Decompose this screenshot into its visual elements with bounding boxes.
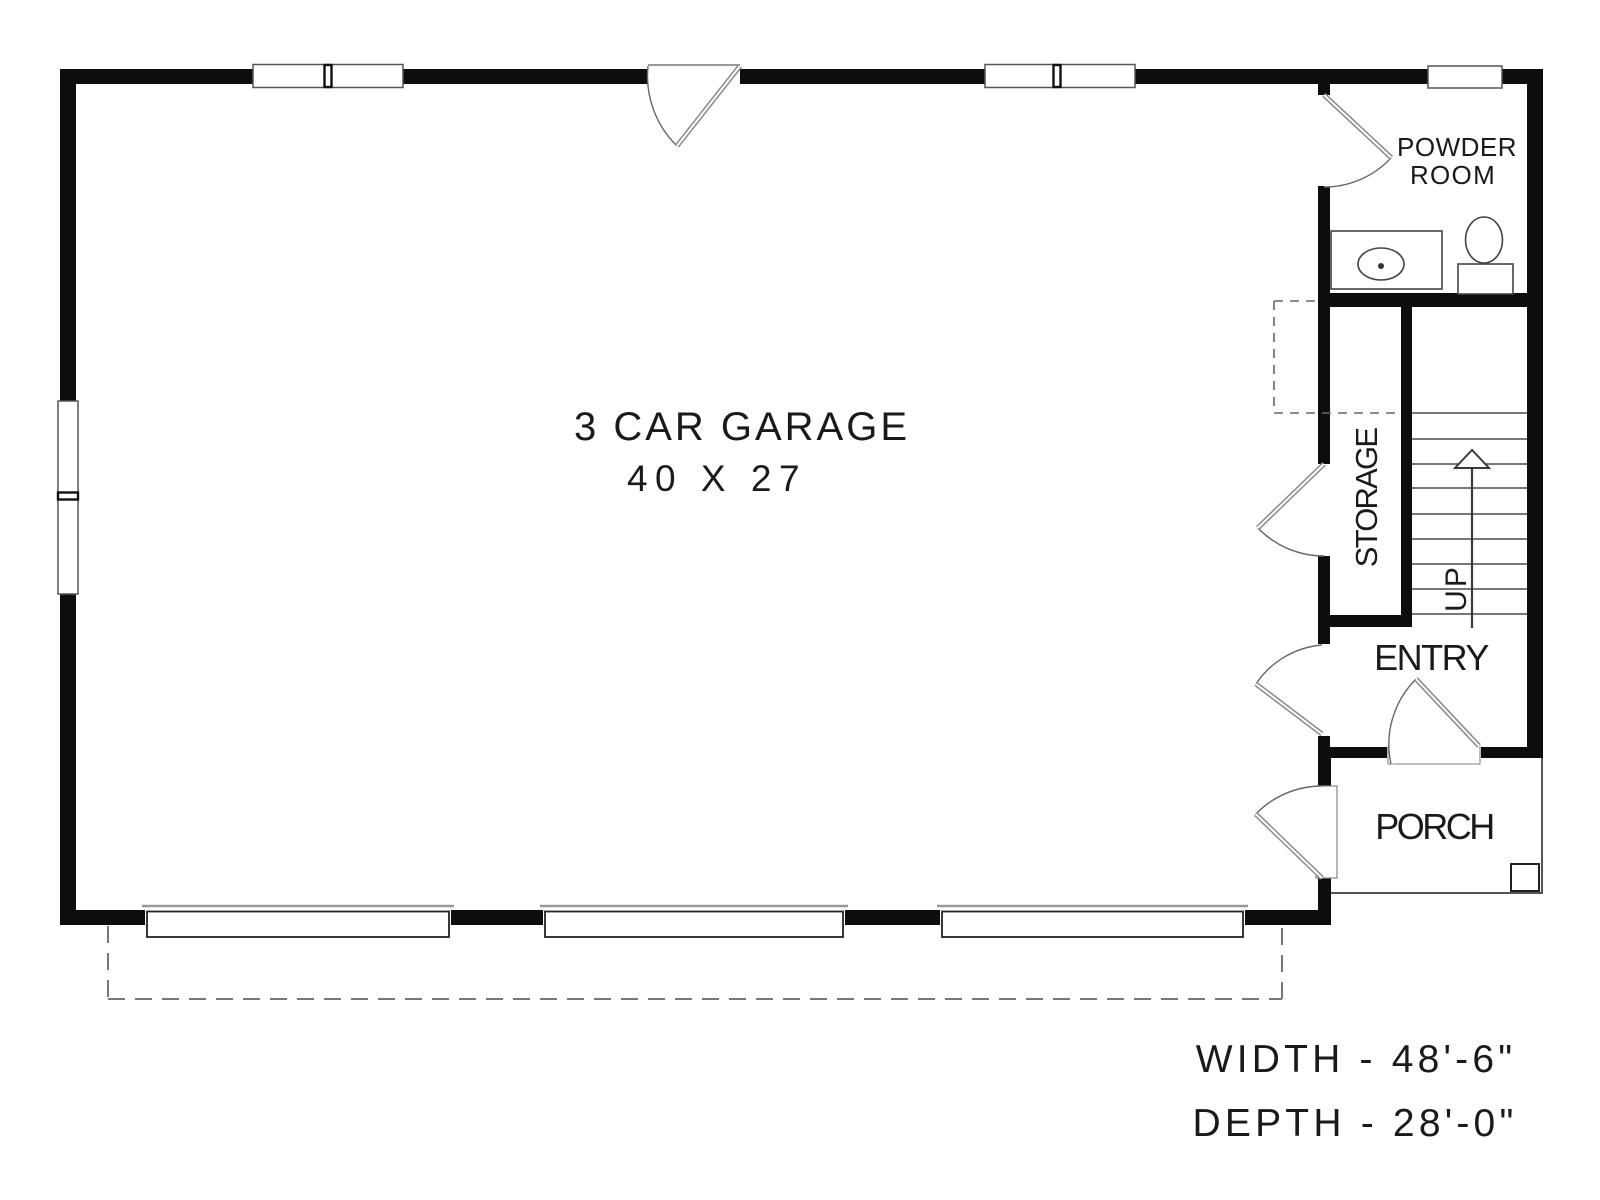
- svg-text:UP: UP: [1440, 564, 1473, 612]
- svg-text:DEPTH - 28'-0": DEPTH - 28'-0": [1193, 1102, 1518, 1145]
- svg-text:STORAGE: STORAGE: [1349, 428, 1384, 568]
- svg-text:40 X 27: 40 X 27: [627, 458, 807, 499]
- svg-text:POWDER: POWDER: [1397, 132, 1517, 162]
- svg-text:PORCH: PORCH: [1375, 806, 1493, 847]
- svg-text:WIDTH - 48'-6": WIDTH - 48'-6": [1196, 1038, 1517, 1081]
- svg-text:ENTRY: ENTRY: [1374, 637, 1489, 678]
- svg-text:ROOM: ROOM: [1410, 160, 1496, 190]
- svg-text:3 CAR GARAGE: 3 CAR GARAGE: [574, 405, 910, 449]
